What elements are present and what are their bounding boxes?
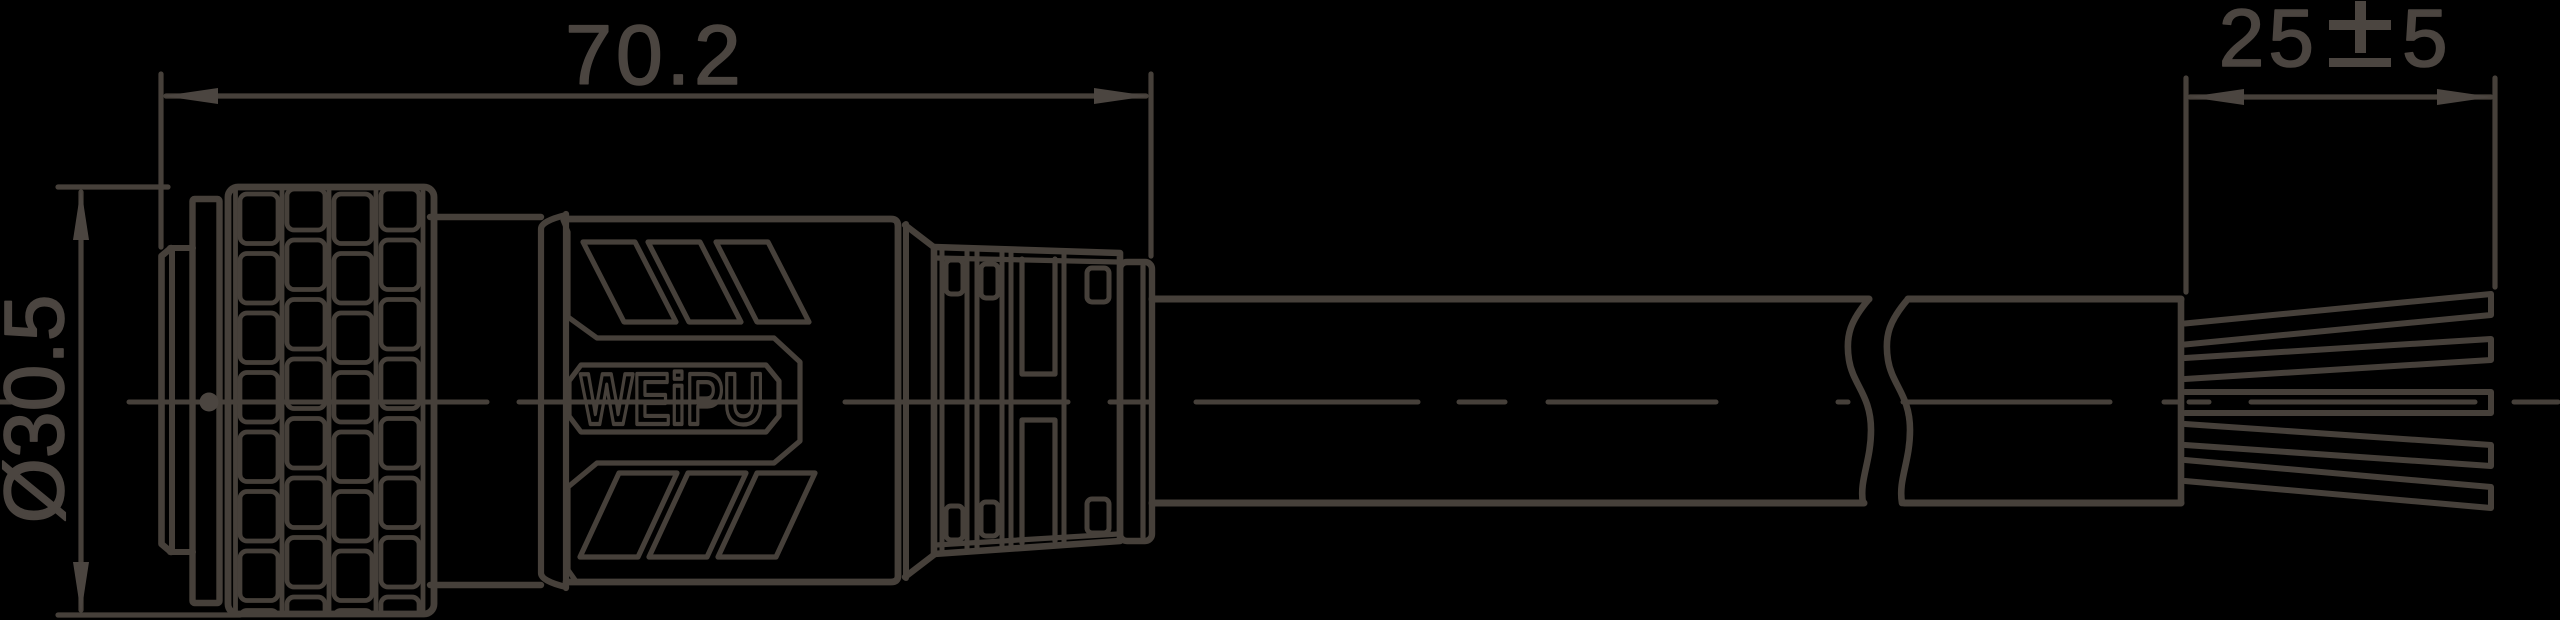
svg-text:70.2: 70.2 — [565, 8, 745, 102]
svg-text:25: 25 — [2219, 0, 2318, 84]
svg-text:5: 5 — [2402, 0, 2448, 84]
svg-text:Ø30.5: Ø30.5 — [0, 295, 81, 524]
svg-text:WEiPU: WEiPU — [580, 358, 764, 440]
